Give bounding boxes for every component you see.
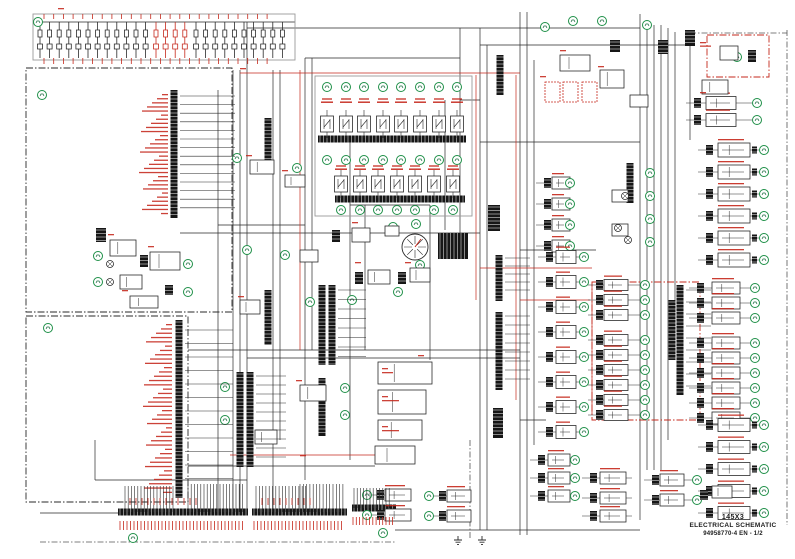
label-text-red xyxy=(712,393,734,394)
reference-circle-icon xyxy=(566,221,575,230)
label-text-red xyxy=(155,354,172,355)
component-box xyxy=(560,55,590,71)
terminal-strip-icon xyxy=(590,473,597,483)
terminal-strip-icon xyxy=(697,368,704,378)
label-text-red xyxy=(147,423,172,424)
label-text-red xyxy=(154,479,172,480)
reference-circle-icon xyxy=(323,83,332,92)
label-text-red xyxy=(141,131,168,132)
ground-icon xyxy=(478,536,486,544)
reference-circle-icon xyxy=(566,200,575,209)
label-text-red xyxy=(556,422,570,423)
reference-circle-icon xyxy=(753,116,762,125)
label-text-red xyxy=(156,119,168,120)
component-box xyxy=(150,252,180,270)
schematic-model: 145X3 xyxy=(663,514,795,522)
label-text-red xyxy=(142,110,168,111)
label-text-red xyxy=(556,397,570,398)
label-text-red xyxy=(604,331,622,332)
label-text-red xyxy=(165,346,172,347)
label-text-red xyxy=(139,172,168,173)
reference-circle-icon xyxy=(751,339,760,348)
label-text-red xyxy=(159,156,168,157)
label-text-red xyxy=(166,427,172,428)
component-box xyxy=(120,275,142,289)
component-box xyxy=(378,390,426,414)
label-text-red xyxy=(604,346,622,347)
label-text-red xyxy=(44,14,267,19)
label-text-red xyxy=(447,486,465,487)
label-text-red xyxy=(548,468,564,469)
label-text-red xyxy=(144,487,172,488)
label-text-red xyxy=(145,147,168,148)
label-text-red xyxy=(712,278,734,279)
label-text-red xyxy=(660,490,678,491)
schematic-canvas xyxy=(0,0,795,559)
reference-circle-icon xyxy=(641,281,650,290)
component-box xyxy=(255,430,277,444)
label-text-red xyxy=(552,236,564,237)
reference-circle-icon xyxy=(394,288,403,297)
reference-circle-icon xyxy=(243,246,252,255)
reference-circle-icon xyxy=(129,534,138,543)
label-text-red xyxy=(146,444,172,445)
label-text-red xyxy=(556,272,570,273)
label-text-red xyxy=(150,358,172,359)
label-text-red xyxy=(155,457,172,458)
label-text-red xyxy=(598,66,604,67)
terminal-strip-icon xyxy=(752,444,757,451)
reference-circle-icon xyxy=(38,91,47,100)
reference-circle-icon xyxy=(580,428,589,437)
terminal-strip-icon xyxy=(697,398,704,408)
reference-circle-icon xyxy=(580,353,589,362)
component-box xyxy=(385,226,399,236)
relay-icon xyxy=(372,176,385,192)
reference-circle-icon xyxy=(416,83,425,92)
label-text-red xyxy=(156,436,172,437)
terminal-strip-icon xyxy=(493,408,503,438)
component-box xyxy=(720,46,738,60)
reference-circle-icon xyxy=(342,83,351,92)
label-text-red xyxy=(377,99,389,102)
component-box xyxy=(300,250,318,262)
terminal-strip-icon xyxy=(596,280,603,290)
label-text-red xyxy=(712,308,734,309)
reference-circle-icon xyxy=(412,220,421,229)
terminal-strip-icon xyxy=(652,495,659,505)
label-text-red xyxy=(296,380,302,381)
terminal-strip-icon xyxy=(706,255,713,265)
label-text-red xyxy=(335,166,347,169)
label-text-red xyxy=(147,106,168,107)
label-text-red xyxy=(718,415,744,416)
reference-circle-icon xyxy=(571,474,580,483)
terminal-strip-icon xyxy=(697,353,704,363)
label-text-red xyxy=(143,406,172,407)
label-text-red xyxy=(447,166,459,169)
terminal-strip-icon xyxy=(752,488,757,495)
enclosure-box xyxy=(26,316,188,502)
label-text-red xyxy=(700,46,711,47)
label-text-red xyxy=(163,492,172,493)
reference-circle-icon xyxy=(342,156,351,165)
label-text-red xyxy=(718,139,744,140)
relay-icon xyxy=(377,116,390,132)
label-text-red xyxy=(556,247,570,248)
reference-circle-icon xyxy=(435,156,444,165)
label-text-red xyxy=(604,376,622,377)
label-text-red xyxy=(149,164,168,165)
label-text-red xyxy=(712,293,734,294)
label-text-red xyxy=(240,68,246,69)
terminal-strip-icon xyxy=(652,475,659,485)
label-text-red xyxy=(143,188,168,189)
reference-circle-icon xyxy=(44,324,53,333)
reference-circle-icon xyxy=(379,529,388,538)
reference-circle-icon xyxy=(425,512,434,521)
label-text-red xyxy=(144,384,172,385)
label-text-red xyxy=(149,483,172,484)
relay-icon xyxy=(395,116,408,132)
terminal-strip-icon xyxy=(439,491,446,501)
label-text-red xyxy=(395,99,407,102)
reference-circle-icon xyxy=(580,253,589,262)
terminal-strip-icon xyxy=(596,350,603,360)
label-text-red xyxy=(161,328,172,329)
label-text-red xyxy=(151,440,172,441)
relay-icon xyxy=(391,176,404,192)
label-text-red xyxy=(409,166,421,169)
label-text-red xyxy=(447,506,465,507)
reference-circle-icon xyxy=(379,83,388,92)
reference-circle-icon xyxy=(356,206,365,215)
reference-circle-icon xyxy=(641,351,650,360)
label-text-red xyxy=(148,246,154,247)
component-box xyxy=(130,296,158,308)
terminal-strip-icon xyxy=(706,233,713,243)
label-text-red xyxy=(433,99,445,102)
reference-circle-icon xyxy=(580,278,589,287)
terminal-strip-icon xyxy=(752,213,757,220)
terminal-strip-icon xyxy=(265,290,272,345)
label-text-red xyxy=(354,166,366,169)
label-text-red xyxy=(372,166,384,169)
terminal-strip-icon xyxy=(697,383,704,393)
label-text-red xyxy=(340,99,352,102)
label-text-red xyxy=(556,322,570,323)
component-box xyxy=(545,82,560,102)
relay-icon xyxy=(321,116,334,132)
label-text-red xyxy=(718,227,744,228)
reference-circle-icon xyxy=(571,492,580,501)
label-text-red xyxy=(166,324,172,325)
label-text-red xyxy=(718,161,744,162)
relay-icon xyxy=(354,176,367,192)
terminal-strip-icon xyxy=(700,490,708,500)
reference-circle-icon xyxy=(751,399,760,408)
label-text-red xyxy=(145,363,172,364)
label-text-red xyxy=(414,99,426,102)
label-text-red xyxy=(712,408,734,409)
wire-stubs xyxy=(185,330,233,479)
relay-icon xyxy=(428,176,441,192)
terminal-strip-icon xyxy=(544,220,551,230)
reference-circle-icon xyxy=(435,83,444,92)
reference-circle-icon xyxy=(646,238,655,247)
reference-circle-icon xyxy=(643,21,652,30)
reference-circle-icon xyxy=(580,303,589,312)
label-text-red xyxy=(321,99,333,102)
terminal-strip-icon xyxy=(596,380,603,390)
reference-circle-icon xyxy=(760,190,769,199)
label-text-red xyxy=(451,99,463,102)
reference-circle-icon xyxy=(541,23,550,32)
reference-circle-icon xyxy=(641,381,650,390)
terminal-strip-icon xyxy=(439,511,446,521)
label-text-red xyxy=(300,455,306,456)
label-text-red xyxy=(706,110,730,111)
reference-circle-icon xyxy=(453,83,462,92)
reference-circle-icon xyxy=(293,164,302,173)
label-text-red xyxy=(156,333,172,334)
terminal-strip-icon xyxy=(752,257,757,264)
label-text-red xyxy=(382,430,399,431)
terminal-strip-icon xyxy=(546,277,553,287)
label-text-red xyxy=(712,363,734,364)
terminal-strip-icon xyxy=(706,420,713,430)
wire-stubs xyxy=(256,376,286,457)
terminal-strip-icon xyxy=(544,178,551,188)
label-text-red xyxy=(385,505,405,506)
terminal-strip-icon xyxy=(318,136,466,143)
label-text-red xyxy=(146,127,168,128)
label-text-red xyxy=(44,58,267,64)
terminal-strip-icon xyxy=(329,285,336,365)
terminal-strip-icon xyxy=(319,285,326,365)
terminal-strip-icon xyxy=(546,327,553,337)
relay-icon xyxy=(340,116,353,132)
label-text-red xyxy=(148,401,172,402)
label-text-red xyxy=(158,393,172,394)
wire-stubs xyxy=(505,316,530,379)
reference-circle-icon xyxy=(760,487,769,496)
label-text-red xyxy=(385,485,405,486)
terminal-strip-icon xyxy=(697,313,704,323)
label-text-red xyxy=(140,151,168,152)
label-text-red xyxy=(556,372,570,373)
label-text-red xyxy=(148,184,168,185)
reference-circle-icon xyxy=(430,206,439,215)
reference-circle-icon xyxy=(374,206,383,215)
terminal-strip-icon xyxy=(590,493,597,503)
label-text-red xyxy=(160,453,172,454)
enclosure-box xyxy=(315,76,472,216)
label-text-red xyxy=(712,378,734,379)
label-text-red xyxy=(552,194,564,195)
reference-circle-icon xyxy=(751,384,760,393)
component-box xyxy=(410,268,430,282)
label-text-red xyxy=(718,249,744,250)
terminal-strip-icon xyxy=(697,298,704,308)
reference-circle-icon xyxy=(397,83,406,92)
terminal-strip-icon xyxy=(685,30,695,46)
terminal-strip-icon xyxy=(546,252,553,262)
relay-icon xyxy=(335,176,348,192)
label-text-red xyxy=(418,355,424,356)
reference-circle-icon xyxy=(233,154,242,163)
label-text-red xyxy=(382,368,388,369)
terminal-strip-icon xyxy=(706,442,713,452)
label-text-red xyxy=(145,466,172,467)
label-text-red xyxy=(556,347,570,348)
reference-circle-icon xyxy=(341,411,350,420)
label-text-red xyxy=(246,155,252,156)
reference-circle-icon xyxy=(281,251,290,260)
title-block: 145X3 ELECTRICAL SCHEMATIC 94958770-4 EN… xyxy=(663,514,795,538)
label-text-red xyxy=(162,192,168,193)
wire-stubs xyxy=(180,96,235,208)
reference-circle-icon xyxy=(425,492,434,501)
reference-circle-icon xyxy=(566,179,575,188)
reference-circle-icon xyxy=(760,443,769,452)
label-text-red xyxy=(165,449,172,450)
label-text-red xyxy=(238,296,244,297)
label-text-red xyxy=(282,170,288,171)
component-box xyxy=(563,82,578,102)
label-text-red xyxy=(700,92,706,93)
label-text-red xyxy=(405,262,411,263)
label-text-red xyxy=(159,475,172,476)
reference-circle-icon xyxy=(641,296,650,305)
label-text-red xyxy=(552,215,564,216)
relay-icon xyxy=(414,116,427,132)
label-text-red xyxy=(153,180,168,181)
terminal-strip-icon xyxy=(171,90,178,218)
terminal-strip-icon xyxy=(538,491,545,501)
reference-circle-icon xyxy=(453,156,462,165)
label-text-red xyxy=(382,400,399,401)
label-text-red xyxy=(150,143,168,144)
label-text-red xyxy=(149,380,172,381)
label-text-red xyxy=(556,297,570,298)
terminal-strip-icon xyxy=(694,98,701,108)
terminal-strip-icon xyxy=(752,422,757,429)
label-text-red xyxy=(163,389,172,390)
label-text-red xyxy=(161,115,168,116)
label-text-red xyxy=(151,337,172,338)
component-box xyxy=(712,486,732,498)
fuse-icon xyxy=(154,22,188,58)
reference-circle-icon xyxy=(641,336,650,345)
terminal-strip-icon xyxy=(752,235,757,242)
reference-circle-icon xyxy=(360,156,369,165)
reference-circle-icon xyxy=(641,411,650,420)
label-text-red xyxy=(158,176,168,177)
label-text-red xyxy=(712,348,734,349)
terminal-strip-icon xyxy=(546,402,553,412)
reference-circle-icon xyxy=(646,169,655,178)
terminal-strip-icon xyxy=(706,189,713,199)
terminal-strip-icon xyxy=(697,338,704,348)
reference-circle-icon xyxy=(360,83,369,92)
terminal-strip-icon xyxy=(706,167,713,177)
terminal-strip-icon xyxy=(752,169,757,176)
label-text-red xyxy=(58,8,64,9)
reference-circle-icon xyxy=(641,366,650,375)
label-text-red xyxy=(154,160,168,161)
reference-circle-icon xyxy=(641,396,650,405)
reference-circle-icon xyxy=(411,206,420,215)
terminal-strip-icon xyxy=(538,473,545,483)
relay-icon xyxy=(358,116,371,132)
schematic-page: 145X3 ELECTRICAL SCHEMATIC 94958770-4 EN… xyxy=(0,0,795,559)
reference-circle-icon xyxy=(397,156,406,165)
component-box xyxy=(300,385,326,401)
terminal-strip-icon xyxy=(546,302,553,312)
reference-circle-icon xyxy=(94,252,103,261)
label-text-red xyxy=(712,333,734,334)
label-text-red xyxy=(120,521,243,530)
terminal-strip-icon xyxy=(265,118,272,166)
label-text-red xyxy=(254,521,342,530)
terminal-strip-icon xyxy=(706,464,713,474)
label-text-red xyxy=(153,397,172,398)
reference-circle-icon xyxy=(566,242,575,251)
reference-circle-icon xyxy=(751,369,760,378)
component-box xyxy=(630,95,648,107)
label-text-red xyxy=(164,367,172,368)
label-text-red xyxy=(382,426,388,427)
label-text-red xyxy=(718,503,744,504)
label-text-red xyxy=(108,234,114,235)
label-text-red xyxy=(548,450,564,451)
reference-circle-icon xyxy=(379,156,388,165)
label-text-red xyxy=(155,139,168,140)
label-text-red xyxy=(152,201,168,202)
label-text-red xyxy=(548,486,564,487)
label-text-red xyxy=(382,396,388,397)
reference-circle-icon xyxy=(693,476,702,485)
component-box xyxy=(240,300,260,314)
label-text-red xyxy=(660,470,678,471)
reference-circle-icon xyxy=(94,278,103,287)
label-text-red xyxy=(700,42,706,43)
reference-circle-icon xyxy=(449,206,458,215)
component-box xyxy=(368,270,390,284)
reference-circle-icon xyxy=(760,256,769,265)
terminal-strip-icon xyxy=(538,455,545,465)
label-text-red xyxy=(718,459,744,460)
component-box xyxy=(110,240,136,256)
component-box xyxy=(582,82,597,102)
terminal-strip-icon xyxy=(496,312,503,390)
label-text-red xyxy=(560,50,566,51)
label-text-red xyxy=(144,168,168,169)
terminal-strip-icon xyxy=(546,427,553,437)
terminal-strip-icon xyxy=(752,191,757,198)
label-text-red xyxy=(358,99,370,102)
component-box xyxy=(285,175,305,187)
reference-circle-icon xyxy=(306,298,315,307)
label-text-red xyxy=(352,222,358,223)
fuse-icon xyxy=(38,22,149,58)
label-text-red xyxy=(382,372,393,373)
terminal-strip-icon xyxy=(488,205,500,231)
terminal-strip-icon xyxy=(677,285,684,395)
terminal-strip-icon xyxy=(596,310,603,320)
reference-circle-icon xyxy=(393,206,402,215)
